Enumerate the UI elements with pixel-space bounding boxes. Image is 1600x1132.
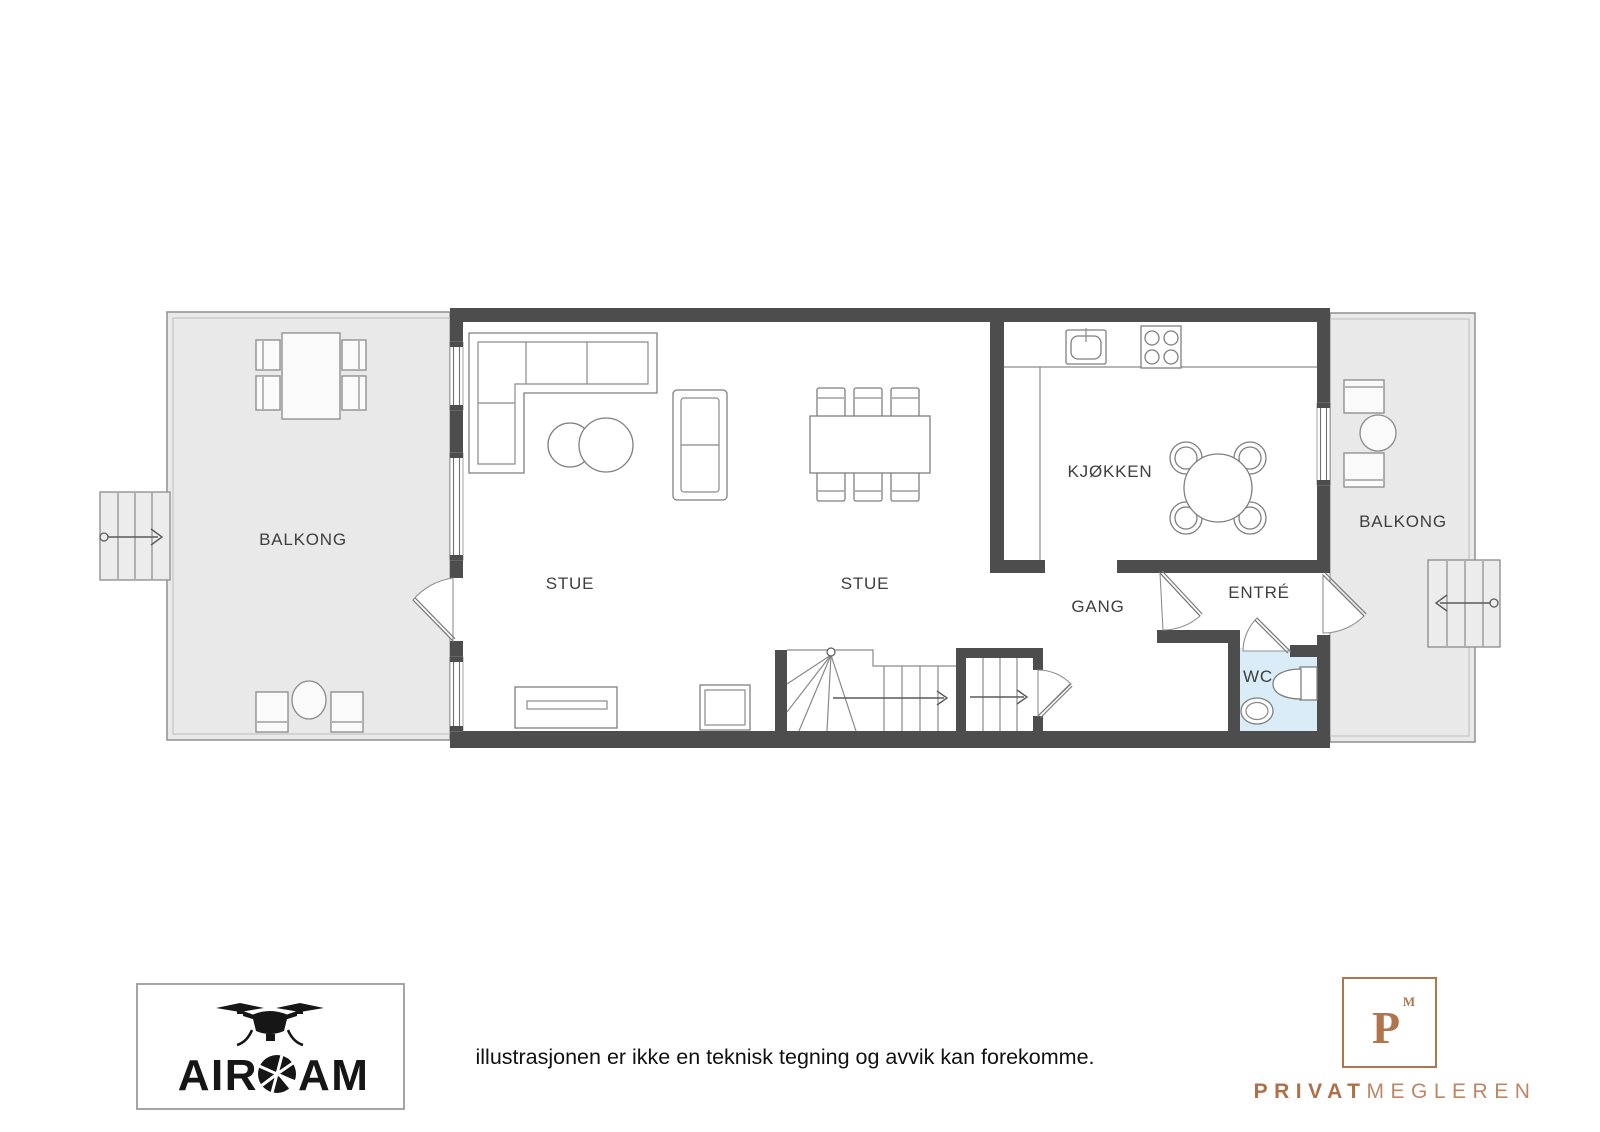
door-gang-entre (1160, 571, 1202, 630)
left-external-stairs (100, 492, 170, 580)
tv-bench (515, 687, 617, 728)
room-label-kitchen: KJØKKEN (1068, 462, 1153, 481)
privatmegleren-monogram-superscript: M (1403, 994, 1415, 1009)
wash-basin (1241, 698, 1273, 724)
straight-staircase (970, 658, 1027, 731)
room-label-balcony-right: BALKONG (1359, 512, 1447, 531)
dining-set (810, 388, 930, 501)
privatmegleren-wordmark-bold: PRIVAT (1254, 1080, 1367, 1103)
left-balcony (100, 312, 450, 740)
armchair (673, 390, 727, 500)
privatmegleren-logo: P M PRIVATMEGLEREN (1254, 978, 1537, 1103)
room-label-wc: WC (1243, 667, 1273, 686)
door-entre-wc (1243, 618, 1290, 653)
winder-staircase (787, 648, 956, 731)
room-label-stue-2: STUE (841, 574, 890, 593)
coffee-tables (548, 418, 633, 472)
floorplan-page: BALKONG STUE STUE KJØKKEN GANG ENTRÉ WC … (0, 0, 1600, 1132)
room-label-stue-1: STUE (546, 574, 595, 593)
stair-newel (827, 648, 835, 656)
kitchen-stove (1141, 326, 1181, 368)
kitchen-table-set (1170, 442, 1266, 534)
aircam-text-left: AIR (178, 1051, 258, 1100)
stue-furniture (469, 333, 930, 730)
side-table (700, 685, 750, 730)
kitchen-sink (1066, 328, 1106, 364)
kitchen-counter (1004, 367, 1317, 560)
disclaimer-text: illustrasjonen er ikke en teknisk tegnin… (385, 1045, 1185, 1070)
room-label-balcony-left: BALKONG (259, 530, 347, 549)
window-left-2 (450, 453, 463, 560)
aircam-text-right: AM (298, 1051, 369, 1100)
privatmegleren-wordmark-light: MEGLEREN (1367, 1080, 1537, 1103)
right-external-stairs (1428, 560, 1500, 647)
room-label-gang: GANG (1071, 597, 1124, 616)
privatmegleren-monogram: P (1372, 1002, 1400, 1053)
door-stairs-gang (1038, 670, 1072, 718)
window-right-1 (1317, 403, 1330, 485)
kitchen-fixtures (1004, 326, 1317, 560)
room-label-entre: ENTRÉ (1228, 583, 1290, 602)
privatmegleren-wordmark: PRIVATMEGLEREN (1254, 1080, 1537, 1103)
window-left-1 (450, 342, 463, 410)
floorplan-drawing: BALKONG STUE STUE KJØKKEN GANG ENTRÉ WC … (0, 0, 1600, 1132)
balcony-dining-set (256, 333, 366, 419)
aircam-logo: AIR AM (137, 984, 404, 1109)
windows (450, 342, 1330, 731)
window-left-3 (450, 657, 463, 731)
